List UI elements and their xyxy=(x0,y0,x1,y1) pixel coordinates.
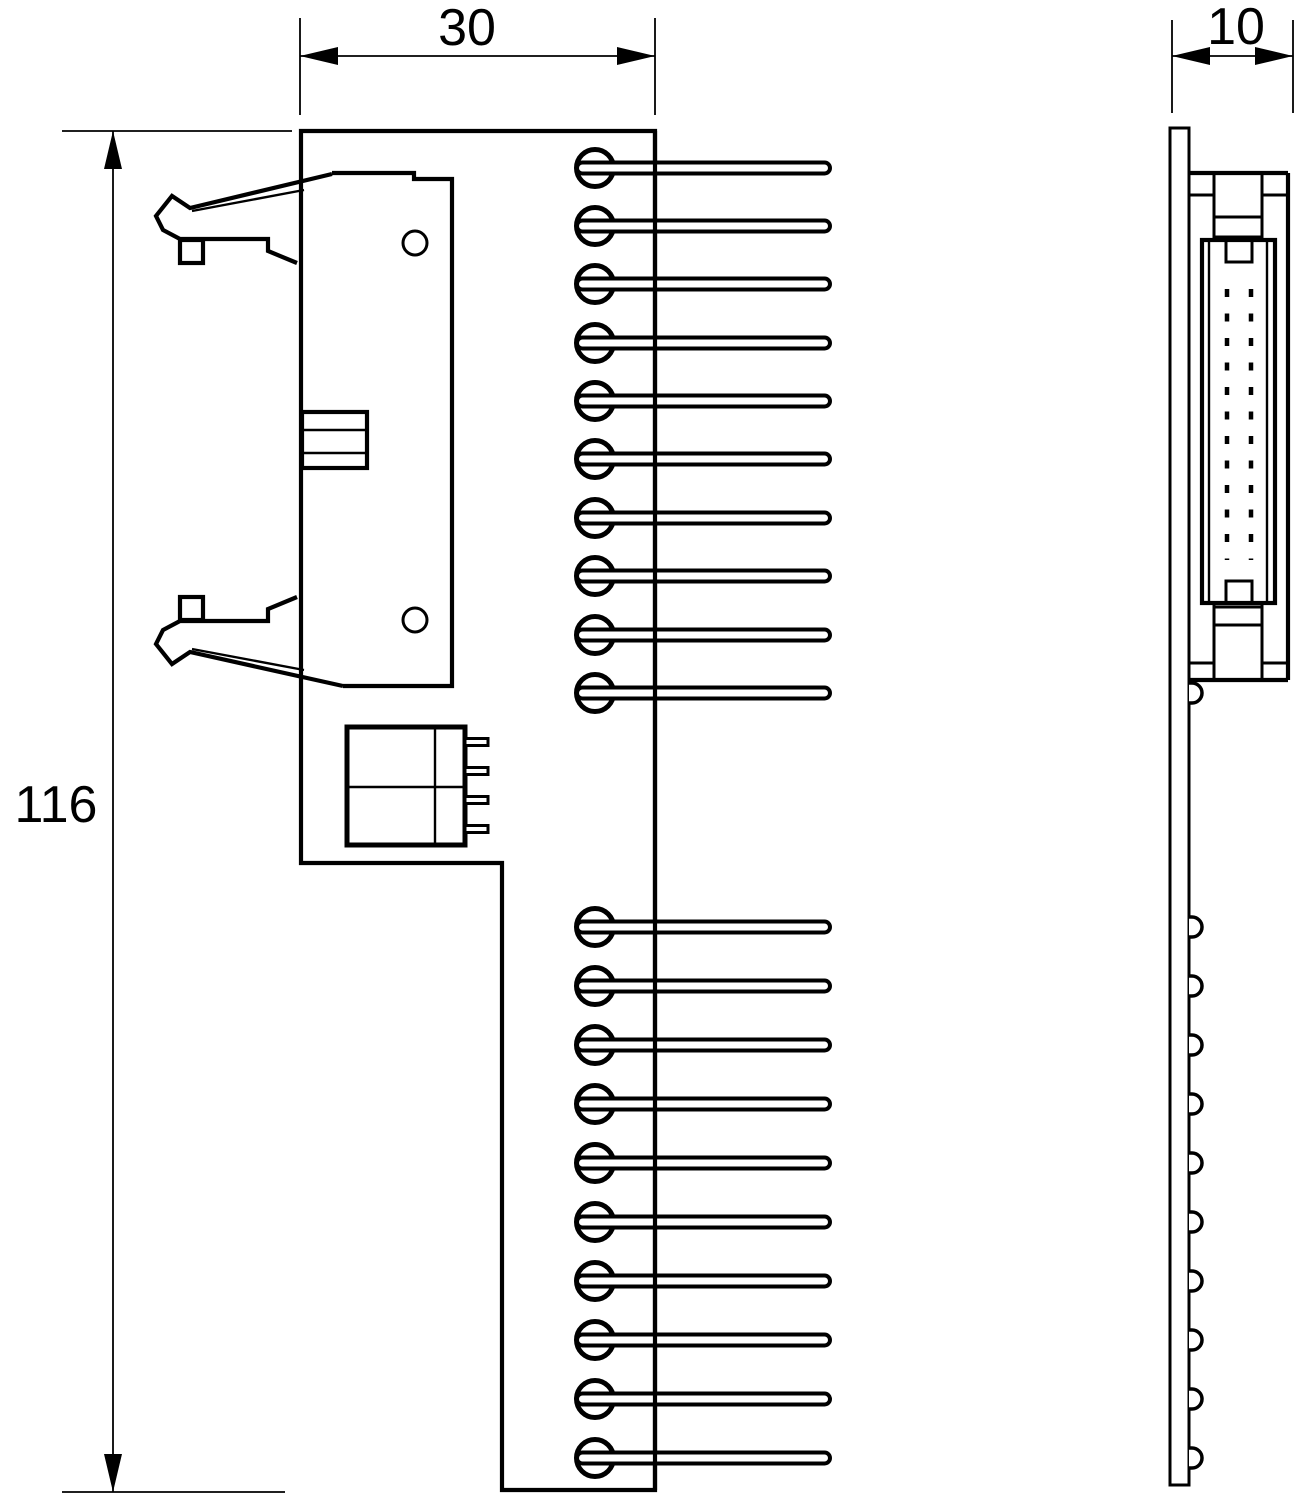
relay-pin xyxy=(465,797,488,804)
connector-key-notch-top xyxy=(1226,240,1252,262)
side-plate xyxy=(1170,128,1189,1485)
terminal-pin-rod xyxy=(577,981,830,992)
side-pin-end xyxy=(1189,1212,1202,1232)
lever-lug-top xyxy=(180,240,203,263)
terminal-pin-rod xyxy=(577,630,830,641)
terminal-pin-rod xyxy=(577,1394,830,1405)
terminal-pin-rod xyxy=(577,1040,830,1051)
terminal-pin-rod xyxy=(577,513,830,524)
front-view xyxy=(156,131,830,1490)
terminal-pin-rod xyxy=(577,163,830,174)
side-pin-end xyxy=(1189,1271,1202,1291)
side-pin-ends xyxy=(1189,683,1202,1468)
dim-width-label: 30 xyxy=(438,0,496,57)
terminal-pin-rod xyxy=(577,279,830,290)
terminal-pin-rod xyxy=(577,396,830,407)
arrowhead-bottom xyxy=(104,1454,122,1492)
side-pin-end xyxy=(1189,917,1202,937)
relay-pins xyxy=(465,739,488,833)
terminal-pin-rod xyxy=(577,922,830,933)
terminal-pin-rod xyxy=(577,571,830,582)
terminal-pin-rod xyxy=(577,1217,830,1228)
relay-pin xyxy=(465,826,488,833)
relay-pin xyxy=(465,768,488,775)
terminal-pin-rod xyxy=(577,1158,830,1169)
release-lever-top xyxy=(156,174,332,263)
side-pin-end xyxy=(1189,1153,1202,1173)
din-rail-block xyxy=(302,412,367,468)
connector-hidden-contacts xyxy=(1227,289,1251,560)
dimension-side-depth: 10 xyxy=(1172,0,1293,113)
technical-drawing-page: 30 116 10 xyxy=(0,0,1299,1500)
terminal-pin-rod xyxy=(577,1453,830,1464)
connector-key-notch-bottom xyxy=(1226,581,1252,603)
terminal-pins-upper xyxy=(577,150,831,712)
housing-hole-bottom xyxy=(403,608,427,632)
terminal-pin-rod xyxy=(577,1099,830,1110)
dimension-front-width: 30 xyxy=(300,0,655,115)
terminal-pin-rod xyxy=(577,1335,830,1346)
side-pin-end xyxy=(1189,976,1202,996)
lever-lug-bottom xyxy=(180,597,203,620)
relay-pin xyxy=(465,739,488,746)
terminal-pin-rod xyxy=(577,221,830,232)
arrowhead-top xyxy=(104,131,122,169)
side-pin-end xyxy=(1189,1094,1202,1114)
side-pin-end xyxy=(1189,1330,1202,1350)
arrowhead-left xyxy=(300,47,338,65)
side-view xyxy=(1170,128,1288,1485)
dim-height-label: 116 xyxy=(15,776,98,834)
arrowhead-right xyxy=(617,47,655,65)
engineering-drawing: 30 116 10 xyxy=(0,0,1299,1500)
dimension-front-height: 116 xyxy=(15,131,292,1492)
terminal-pin-rod xyxy=(577,688,830,699)
release-lever-bottom xyxy=(156,597,343,686)
side-pin-end xyxy=(1189,1448,1202,1468)
dim-depth-label: 10 xyxy=(1207,0,1265,56)
side-pin-end xyxy=(1189,1035,1202,1055)
terminal-pins-lower xyxy=(577,909,831,1477)
connector-body xyxy=(1202,240,1275,603)
terminal-pin-rod xyxy=(577,1276,830,1287)
arrowhead-left xyxy=(1172,47,1210,65)
terminal-pin-rod xyxy=(577,338,830,349)
terminal-pin-rod xyxy=(577,454,830,465)
side-pin-end xyxy=(1189,1389,1202,1409)
housing-hole-top xyxy=(403,231,427,255)
side-pin-end xyxy=(1189,683,1202,703)
